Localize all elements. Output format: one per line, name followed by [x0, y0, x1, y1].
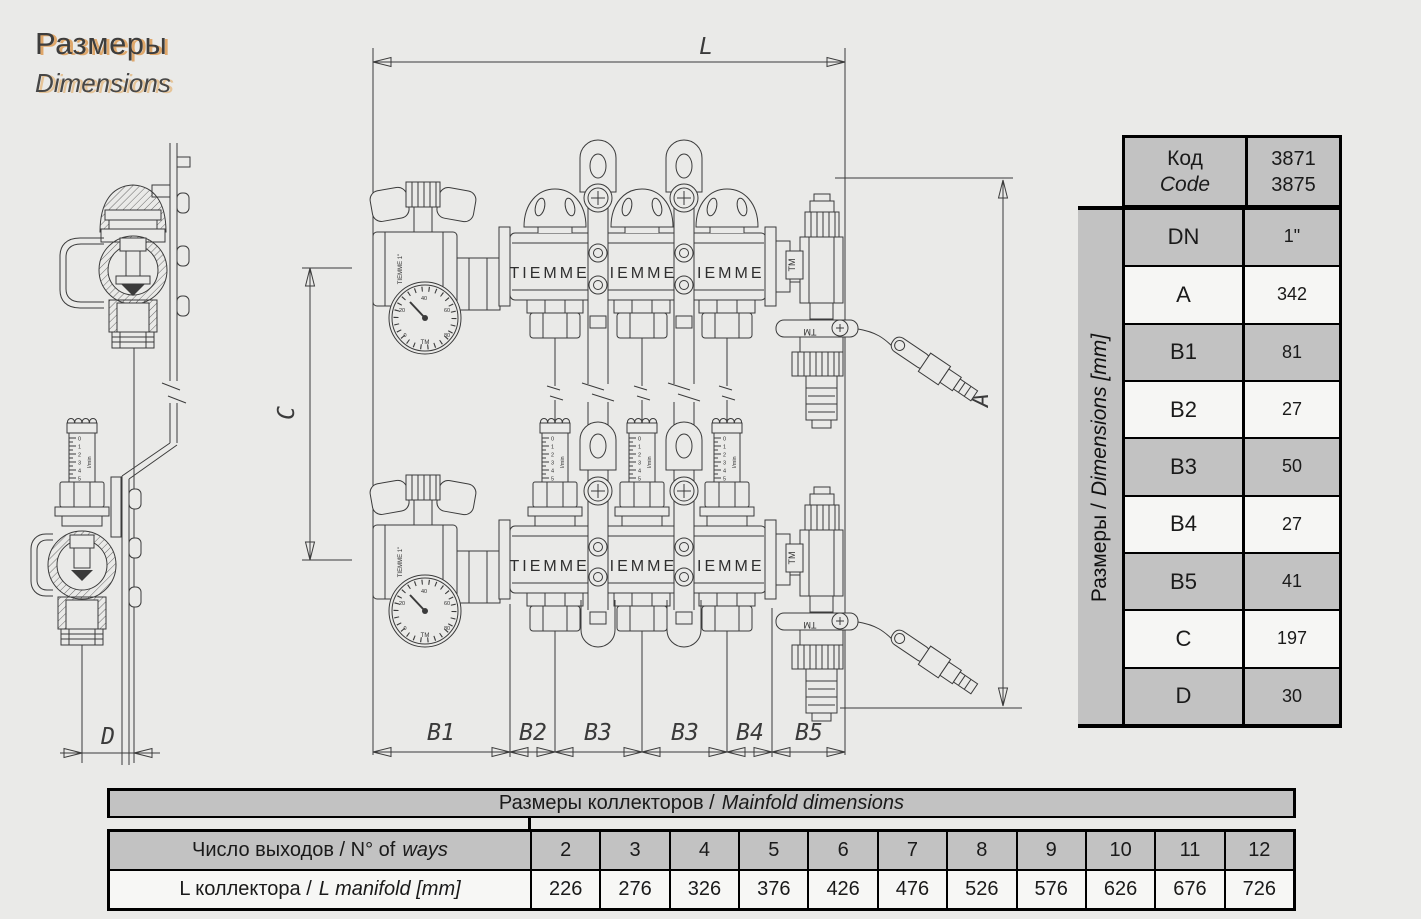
flow-scale-1: 1	[551, 445, 554, 451]
manifold-table-rows: Число выходов / N° of ways 2 3 4 5 6 7 8…	[107, 829, 1296, 911]
param-label: A	[1125, 267, 1245, 322]
valve-wing-left	[369, 186, 411, 223]
manifold-title-ru: Размеры коллекторов /	[499, 792, 715, 815]
divider	[1078, 724, 1342, 728]
dimension-lines: L A C D	[60, 34, 1022, 763]
side-label-ru: Размеры /	[1088, 503, 1111, 602]
param-label: B4	[1125, 497, 1245, 552]
gauge-scale-0: 0	[403, 333, 406, 339]
param-label: B3	[1125, 439, 1245, 494]
outlet-fitting	[699, 300, 755, 338]
code-values-cell: 3871 3875	[1245, 138, 1339, 205]
thermometer: 0 20 40 60 80 TM	[389, 282, 461, 354]
vent-tm-label: TM	[787, 259, 797, 272]
code-value-1: 3871	[1271, 146, 1316, 172]
length-value: 226	[530, 871, 599, 908]
length-label-ru: L коллектора /	[179, 878, 311, 901]
param-value: 1"	[1245, 208, 1339, 265]
table-row: A342	[1125, 265, 1339, 322]
ways-value: 9	[1016, 832, 1085, 869]
hanger-hole	[590, 434, 606, 458]
ways-label-en: ways	[402, 839, 448, 862]
ways-value: 10	[1085, 832, 1154, 869]
ways-label: Число выходов / N° of ways	[110, 832, 530, 869]
ways-value: 4	[669, 832, 738, 869]
dim-label-C: C	[274, 406, 300, 420]
flow-meter: 0 1 2 3 4 5 l/min	[528, 419, 582, 527]
manifold-body: TIEMME TIEMME TIEMME	[499, 227, 790, 306]
spec-table-header: Код Code 3871 3875	[1122, 135, 1342, 208]
table-row: B350	[1125, 437, 1339, 494]
length-label: L коллектора / L manifold [mm]	[110, 871, 530, 908]
ways-value: 2	[530, 832, 599, 869]
param-value: 197	[1245, 611, 1339, 666]
gauge-scale-20: 20	[399, 308, 405, 314]
param-label: DN	[1125, 208, 1245, 265]
end-assembly: TM TM	[776, 194, 980, 428]
drain-valve-pictogram	[887, 332, 981, 405]
length-label-en: L manifold [mm]	[319, 878, 461, 901]
length-value: 626	[1085, 871, 1154, 908]
gauge-tm-label: TM	[421, 340, 430, 346]
param-value: 342	[1245, 267, 1339, 322]
vent-cap	[805, 212, 839, 237]
thermostatic-cap	[524, 189, 586, 233]
technical-drawing: L A C D	[0, 0, 1060, 790]
dim-label-B4: B4	[736, 720, 764, 746]
length-value: 476	[877, 871, 946, 908]
length-row: L коллектора / L manifold [mm] 226 276 3…	[110, 871, 1293, 908]
dimension-L: L	[373, 34, 845, 67]
datasheet-page: Размеры Dimensions L	[0, 0, 1421, 919]
length-value: 326	[669, 871, 738, 908]
length-value: 526	[946, 871, 1015, 908]
dimension-A: A	[835, 178, 1022, 708]
ways-value: 3	[599, 832, 668, 869]
flow-scale-4: 4	[551, 469, 554, 475]
ways-value: 11	[1154, 832, 1223, 869]
dim-label-D: D	[100, 724, 115, 750]
manifold-table-title: Размеры коллекторов / Mainfold dimension…	[107, 788, 1296, 818]
table-row: D30	[1125, 667, 1339, 724]
table-row: B227	[1125, 380, 1339, 437]
side-view-bottom	[31, 419, 141, 646]
param-label: B5	[1125, 554, 1245, 609]
divider	[528, 818, 531, 829]
code-label-ru: Код	[1167, 146, 1203, 172]
table-row: B427	[1125, 495, 1339, 552]
ways-value: 8	[946, 832, 1015, 869]
table-row: C197	[1125, 609, 1339, 666]
leader-line	[858, 329, 894, 348]
code-value-2: 3875	[1271, 172, 1316, 198]
dim-label-B5: B5	[795, 720, 823, 746]
lever-tm-label: TM	[804, 327, 817, 337]
length-value: 426	[807, 871, 876, 908]
flow-meter-side	[55, 419, 109, 527]
flow-scale-2: 2	[551, 453, 554, 459]
manifold-dimensions-table: Размеры коллекторов / Mainfold dimension…	[107, 788, 1296, 911]
length-value: 376	[738, 871, 807, 908]
param-value: 81	[1245, 325, 1339, 380]
ways-value: 12	[1224, 832, 1293, 869]
dim-label-L: L	[699, 34, 713, 60]
valve-wing-right	[435, 186, 477, 223]
length-value: 676	[1154, 871, 1223, 908]
u-clamp	[60, 238, 104, 308]
flow-meter	[615, 419, 669, 527]
side-label-en: Dimensions [mm]	[1088, 333, 1111, 495]
length-value: 276	[599, 871, 668, 908]
dim-label-B1: B1	[427, 720, 455, 746]
flow-scale-3: 3	[551, 461, 554, 467]
spec-table: Размеры /Dimensions [mm] Код Code 3871 3…	[1078, 135, 1342, 731]
code-label-en: Code	[1160, 172, 1210, 198]
param-value: 50	[1245, 439, 1339, 494]
dimension-C: C	[274, 268, 352, 560]
length-value: 726	[1224, 871, 1293, 908]
spec-table-rows: DN1" A342 B181 B227 B350 B427 B541 C197 …	[1122, 208, 1342, 727]
table-row: B541	[1125, 552, 1339, 609]
dim-label-B2: B2	[519, 720, 547, 746]
spec-table-side-label: Размеры /Dimensions [mm]	[1078, 208, 1122, 727]
param-value: 41	[1245, 554, 1339, 609]
valve-brand-label: TIEMME 1"	[398, 254, 404, 284]
outlet-fitting	[614, 300, 670, 338]
knurled-nut	[792, 352, 843, 376]
flow-meter	[700, 419, 754, 527]
length-value: 576	[1016, 871, 1085, 908]
manifold-brand-text: TIEMME TIEMME TIEMME	[510, 265, 765, 282]
table-row: DN1"	[1125, 208, 1339, 265]
param-value: 27	[1245, 382, 1339, 437]
hose-barb	[806, 376, 837, 388]
gauge-scale-80: 80	[444, 333, 450, 339]
hanger-hole	[590, 154, 606, 178]
param-label: B1	[1125, 325, 1245, 380]
ways-value: 5	[738, 832, 807, 869]
outlet-fitting	[527, 300, 583, 338]
divider	[1078, 206, 1342, 210]
param-label: C	[1125, 611, 1245, 666]
ways-value: 7	[877, 832, 946, 869]
dim-label-B3-right: B3	[671, 720, 699, 746]
param-label: B2	[1125, 382, 1245, 437]
flow-unit-label: l/min	[560, 456, 566, 468]
ways-value: 6	[807, 832, 876, 869]
gauge-scale-40: 40	[421, 296, 427, 302]
table-gap	[107, 818, 1296, 829]
thermostatic-cap	[611, 189, 673, 233]
flow-scale-0: 0	[551, 437, 554, 443]
ways-row: Число выходов / N° of ways 2 3 4 5 6 7 8…	[110, 832, 1293, 871]
table-row: B181	[1125, 323, 1339, 380]
code-header-cell: Код Code	[1125, 138, 1245, 205]
param-value: 27	[1245, 497, 1339, 552]
manifold-title-en: Mainfold dimensions	[722, 792, 904, 815]
dim-label-B3-left: B3	[584, 720, 612, 746]
ways-label-ru: Число выходов / N° of	[192, 839, 395, 862]
thermostatic-cap	[696, 189, 758, 233]
param-value: 30	[1245, 669, 1339, 724]
param-label: D	[1125, 669, 1245, 724]
gauge-scale-60: 60	[444, 308, 450, 314]
